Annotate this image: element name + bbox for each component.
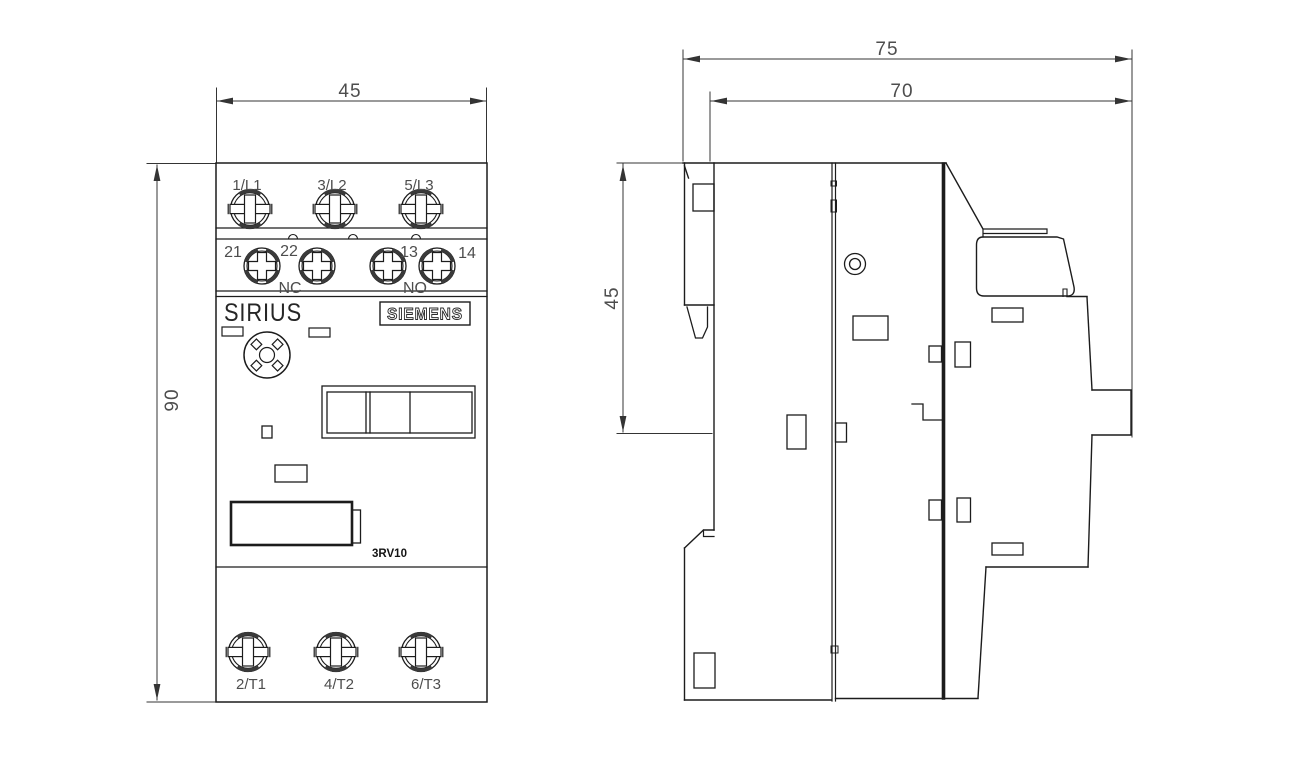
front-vent-slots bbox=[222, 327, 330, 337]
side-view: 75 70 45 bbox=[602, 39, 1132, 701]
label-field bbox=[231, 502, 352, 545]
side-body-outline bbox=[683, 163, 1131, 701]
aux-screw-22 bbox=[299, 248, 335, 284]
indicator-square bbox=[262, 426, 272, 438]
side-height45-dim-text: 45 bbox=[602, 286, 623, 309]
side-depth70-dimension bbox=[710, 92, 1131, 161]
front-width-dim-text: 45 bbox=[338, 81, 361, 102]
aux-screw-14 bbox=[419, 248, 455, 284]
setting-window[interactable] bbox=[322, 386, 475, 438]
aux-label-nc: NC bbox=[278, 280, 301, 297]
side-detail-features bbox=[787, 254, 1023, 556]
siemens-logo-text: SIEMENS bbox=[387, 305, 463, 324]
front-notches bbox=[289, 235, 421, 240]
aux-label-21: 21 bbox=[224, 244, 242, 261]
aux-label-14: 14 bbox=[458, 245, 476, 262]
side-height45-dimension bbox=[617, 163, 712, 434]
aux-label-no: NO bbox=[403, 280, 427, 297]
aux-label-13: 13 bbox=[400, 244, 418, 261]
front-view: 45 90 1/L1 3/L2 bbox=[147, 81, 487, 702]
terminal-label-4T2: 4/T2 bbox=[324, 676, 354, 693]
terminal-label-1L1: 1/L1 bbox=[232, 177, 261, 194]
aux-screw-21 bbox=[244, 248, 280, 284]
aux-label-22: 22 bbox=[280, 243, 298, 260]
terminal-screw-3L2 bbox=[313, 190, 357, 229]
side-screw-hole-inner bbox=[850, 259, 861, 270]
front-height-dim-text: 90 bbox=[162, 388, 183, 411]
front-height-dimension bbox=[147, 164, 216, 703]
terminal-label-2T1: 2/T1 bbox=[236, 676, 266, 693]
rotary-knob[interactable] bbox=[244, 332, 290, 378]
terminal-label-3L2: 3/L2 bbox=[317, 177, 346, 194]
side-depth75-dim-text: 75 bbox=[875, 39, 898, 60]
terminal-screw-1L1 bbox=[228, 190, 272, 229]
side-depth70-dim-text: 70 bbox=[890, 81, 913, 102]
drawing-svg: 45 90 1/L1 3/L2 bbox=[0, 0, 1313, 766]
model-text: 3RV10 bbox=[372, 546, 407, 560]
technical-drawing-canvas: 45 90 1/L1 3/L2 bbox=[0, 0, 1313, 766]
terminal-screw-4T2 bbox=[314, 633, 358, 672]
terminal-screw-6T3 bbox=[399, 633, 443, 672]
test-button[interactable] bbox=[275, 465, 307, 482]
terminal-label-5L3: 5/L3 bbox=[404, 177, 433, 194]
terminal-screw-5L3 bbox=[399, 190, 443, 229]
brand-text-sirius: SIRIUS bbox=[224, 299, 302, 327]
terminal-screw-2T1 bbox=[226, 633, 270, 672]
terminal-label-6T3: 6/T3 bbox=[411, 676, 441, 693]
side-screw-hole-outer bbox=[845, 254, 866, 275]
